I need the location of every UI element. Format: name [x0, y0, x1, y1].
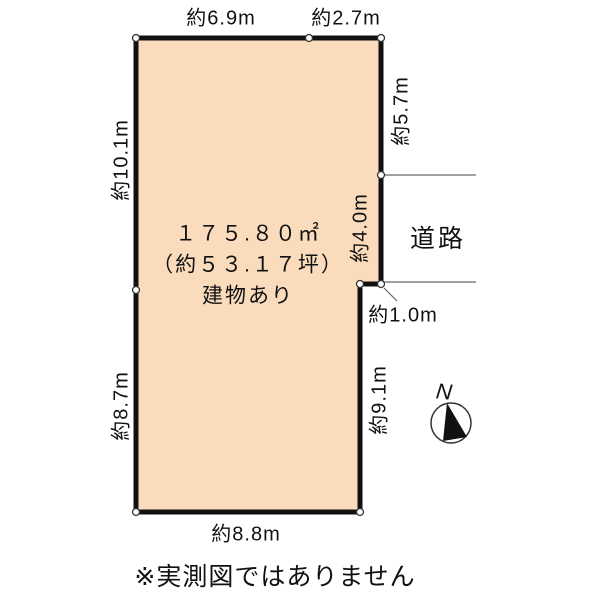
- dim-label-right-middle: 約4.0m: [344, 193, 373, 262]
- parcel-tsubo-label: （約５３.１７坪）: [152, 250, 344, 281]
- north-arrow-icon: [431, 403, 471, 443]
- vertex-dot: [133, 287, 140, 294]
- dim-label-right-lower: 約9.1m: [363, 365, 392, 434]
- dim-label-left-lower: 約8.7m: [105, 371, 134, 440]
- vertex-dot: [378, 172, 385, 179]
- vertex-dot: [357, 509, 364, 516]
- vertex-dot: [133, 509, 140, 516]
- parcel-building-label: 建物あり: [152, 281, 344, 312]
- disclaimer-caption: ※実測図ではありません: [134, 557, 415, 593]
- parcel-area-label: １７５.８０㎡: [152, 219, 344, 250]
- land-plot-diagram: 約6.9m 約2.7m 約10.1m 約8.7m 約5.7m 約4.0m 約1.…: [0, 0, 600, 600]
- vertex-dot: [378, 281, 385, 288]
- dim-label-left-upper: 約10.1m: [105, 119, 134, 201]
- road-label: 道路: [410, 219, 466, 255]
- dim-label-right-upper: 約5.7m: [385, 76, 414, 145]
- vertex-dot: [378, 35, 385, 42]
- parcel-info: １７５.８０㎡ （約５３.１７坪） 建物あり: [152, 219, 344, 312]
- vertex-dot: [306, 35, 313, 42]
- compass-needle: [443, 403, 467, 441]
- dim-label-top-right: 約2.7m: [311, 2, 380, 31]
- vertex-dot: [357, 281, 364, 288]
- dim-label-bottom: 約8.8m: [211, 518, 280, 547]
- north-label: N: [435, 378, 454, 406]
- dim-label-step: 約1.0m: [368, 299, 437, 328]
- vertex-dot: [133, 35, 140, 42]
- dim-label-top-left: 約6.9m: [186, 2, 255, 31]
